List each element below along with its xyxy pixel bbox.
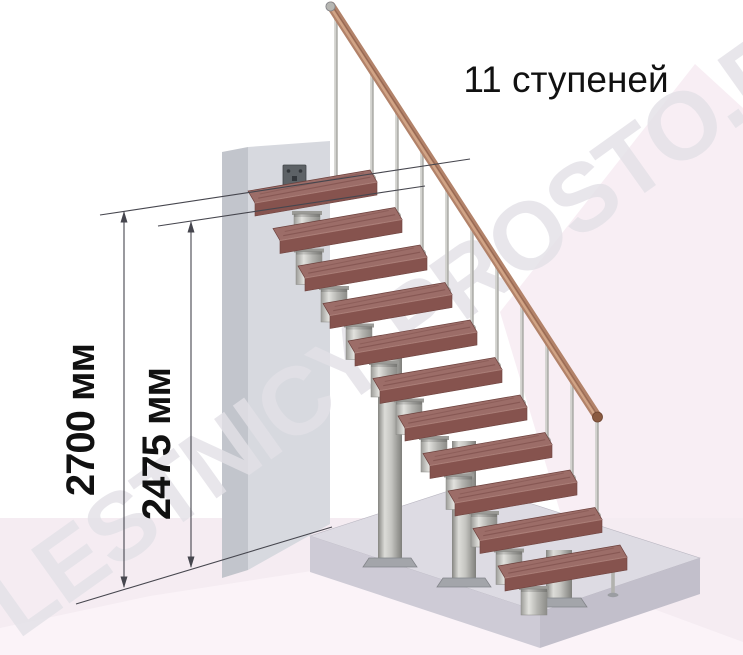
staircase-diagram: LESTNICY-PROSTO.RU 2700 мм 2475 мм 11 ст… bbox=[0, 0, 743, 655]
module-shadow-7 bbox=[446, 477, 472, 480]
module-shadow-8 bbox=[471, 514, 497, 517]
spine-module-10 bbox=[521, 589, 547, 615]
module-shadow-2 bbox=[321, 289, 347, 292]
handrail-end-cap bbox=[593, 412, 603, 422]
dimension-2475-label: 2475 мм bbox=[135, 368, 179, 520]
module-shadow-5 bbox=[396, 402, 422, 405]
module-shadow-1 bbox=[296, 252, 322, 255]
handrail-top-ferrule bbox=[326, 2, 335, 11]
module-shadow-3 bbox=[346, 327, 372, 330]
column-base-plate-2 bbox=[437, 578, 491, 587]
column-base-plate-1 bbox=[363, 558, 417, 567]
tread-leg-foot-1 bbox=[608, 593, 619, 597]
dimension-2700-label: 2700 мм bbox=[59, 344, 103, 496]
module-shadow-9 bbox=[496, 552, 522, 555]
staircase-diagram-page: LESTNICY-PROSTO.RU 2700 мм 2475 мм 11 ст… bbox=[0, 0, 743, 655]
module-shadow-0 bbox=[294, 214, 320, 217]
module-shadow-10 bbox=[521, 589, 547, 592]
module-shadow-4 bbox=[371, 364, 397, 367]
module-shadow-6 bbox=[421, 439, 447, 442]
page-title: 11 ступеней bbox=[463, 59, 668, 100]
